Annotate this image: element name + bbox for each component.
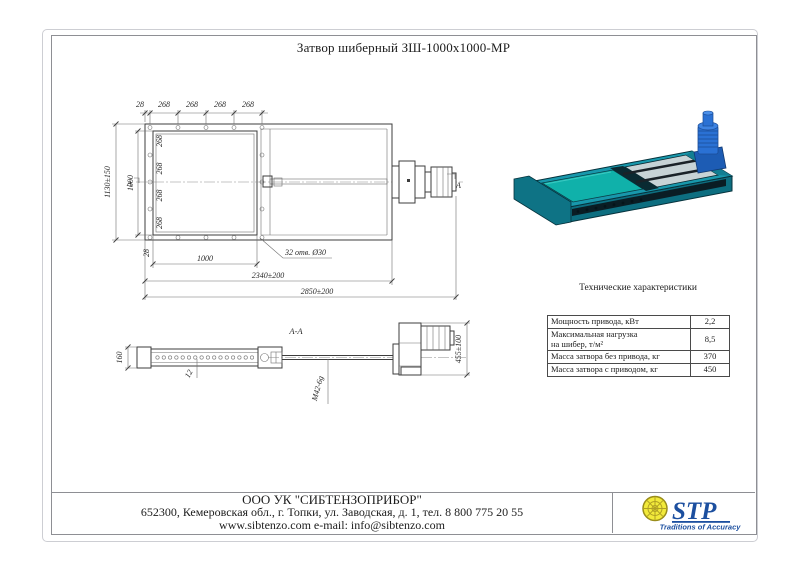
dim-holes-note: 32 отв. Ø30: [284, 248, 326, 257]
dim-body-length: 2340±200: [252, 271, 284, 280]
drive-plan: [392, 161, 456, 203]
dim-overall-height: 1130±150: [103, 166, 112, 198]
dim-holes-count: 12: [183, 368, 195, 379]
footer: ООО УК "СИБТЕНЗОПРИБОР" 652300, Кемеровс…: [52, 493, 612, 532]
spec-param: Масса затвора без привода, кг: [551, 352, 687, 362]
dim-overall-length: 2850±200: [301, 287, 333, 296]
specs-title: Технические характеристики: [538, 283, 738, 293]
stp-logo: STP Traditions of Accuracy: [630, 493, 756, 531]
dim-flange-edge: 28: [142, 249, 151, 257]
dim-opening-width: 1000: [197, 254, 213, 263]
dim-top-28: 28: [136, 100, 144, 109]
stp-logo-tagline: Traditions of Accuracy: [660, 523, 742, 532]
spec-value: 2,2: [691, 316, 730, 329]
company-name: ООО УК "СИБТЕНЗОПРИБОР": [242, 493, 422, 507]
stp-logo-text: STP: [672, 498, 717, 525]
section-mark-right: А: [455, 181, 461, 190]
dim-drive-height: 455±100: [454, 335, 463, 363]
spec-param: Масса затвора с приводом, кг: [551, 365, 687, 375]
spec-row: Масса затвора с приводом, кг 450: [548, 364, 730, 377]
spec-value: 8,5: [691, 328, 730, 351]
dim-section-height: 160: [115, 352, 124, 364]
spec-row: Масса затвора без привода, кг 370: [548, 351, 730, 364]
specs-table: Мощность привода, кВт 2,2 Максимальная н…: [547, 315, 730, 377]
dim-seg-268-1: 268: [155, 135, 164, 147]
render-motor: [694, 111, 726, 173]
section-view-label: А-А: [288, 326, 303, 336]
dim-top-268-2: 268: [186, 100, 198, 109]
section-view: А-А: [115, 321, 470, 405]
stp-emblem-icon: [643, 497, 667, 521]
section-mark-left: А: [126, 179, 132, 188]
drive-side: [393, 323, 454, 375]
dim-top-268-1: 268: [158, 100, 170, 109]
drawing-sheet: Затвор шиберный ЗШ-1000х1000-МР: [0, 0, 800, 566]
dim-screw-thread: М42-6g: [310, 375, 326, 403]
dim-seg-268-3: 268: [155, 190, 164, 202]
dim-seg-268-2: 268: [155, 163, 164, 175]
spec-value: 370: [691, 351, 730, 364]
spec-row: Мощность привода, кВт 2,2: [548, 316, 730, 329]
footer-logo-divider: [612, 492, 613, 533]
dim-top-268-3: 268: [214, 100, 226, 109]
company-contacts: www.sibtenzo.com e-mail: info@sibtenzo.c…: [219, 519, 445, 532]
spec-param: Мощность привода, кВт: [551, 317, 687, 327]
dim-top-268-4: 268: [242, 100, 254, 109]
spec-value: 450: [691, 364, 730, 377]
spec-row: Максимальная нагрузкана шибер, т/м² 8,5: [548, 328, 730, 351]
product-render: [514, 111, 732, 225]
dim-seg-268-4: 268: [155, 217, 164, 229]
main-view: [136, 124, 463, 240]
